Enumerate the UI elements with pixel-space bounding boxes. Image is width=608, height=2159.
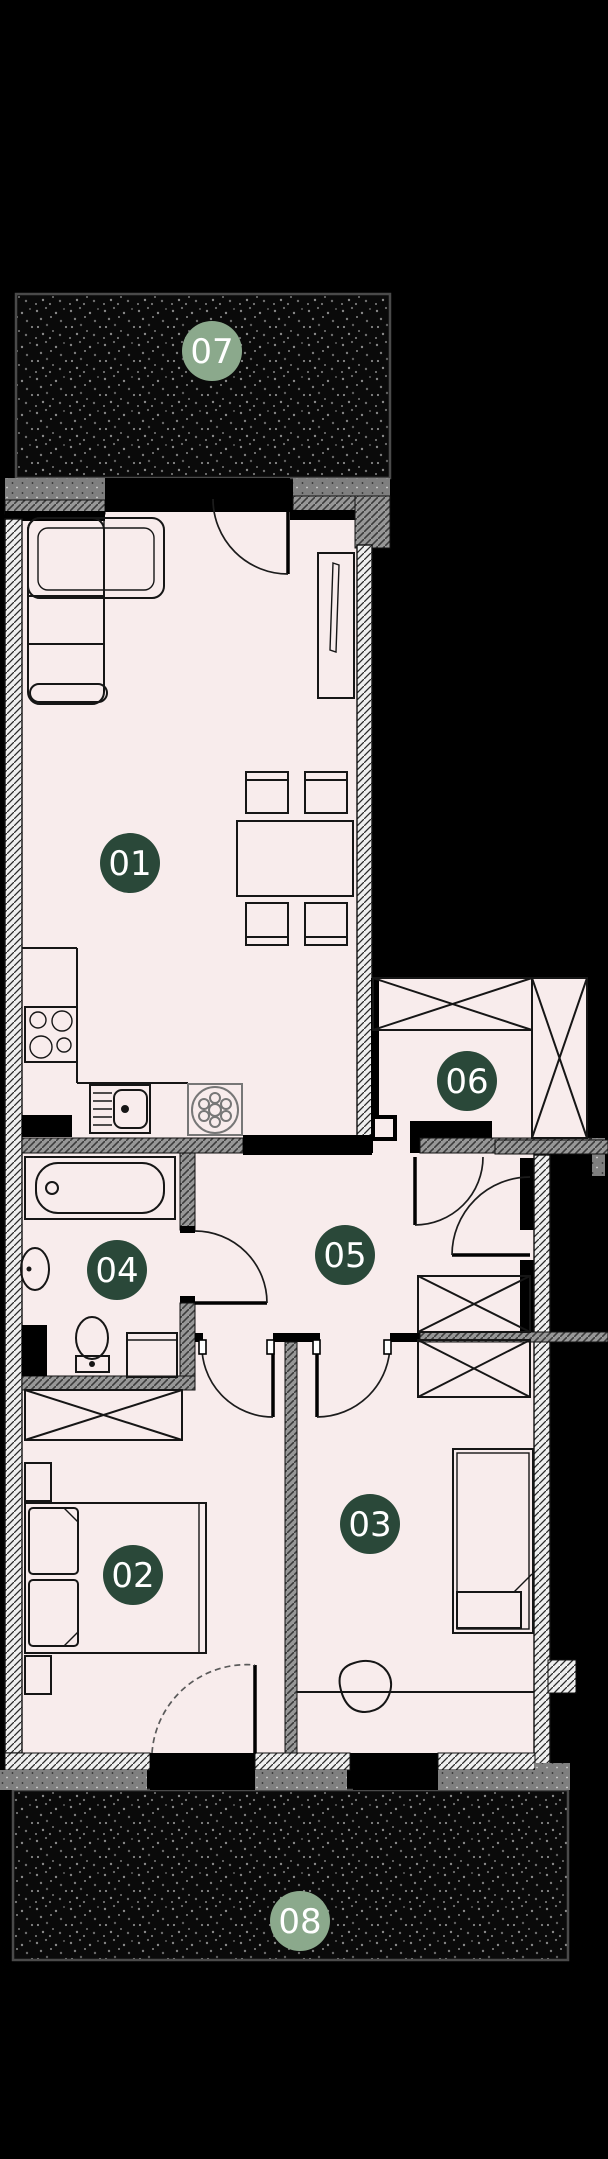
room-05-badge: 05 [315,1225,375,1285]
svg-text:05: 05 [323,1236,366,1276]
room-08-badge: 08 [270,1891,330,1951]
svg-text:01: 01 [108,844,151,884]
svg-text:02: 02 [111,1556,154,1596]
room-06-badge: 06 [437,1051,497,1111]
svg-text:06: 06 [445,1062,488,1102]
terrace-top [16,294,390,478]
svg-text:08: 08 [278,1902,321,1942]
room-03-badge: 03 [340,1494,400,1554]
room-04-badge: 04 [87,1240,147,1300]
svg-text:03: 03 [348,1505,391,1545]
room-01-badge: 01 [100,833,160,893]
floor-plan: 01 02 03 04 05 06 07 08 [0,0,608,2159]
shaft [22,1115,72,1137]
shaft [22,1325,47,1376]
svg-text:04: 04 [95,1251,138,1291]
room-02-badge: 02 [103,1545,163,1605]
svg-text:07: 07 [190,332,233,372]
room-07-badge: 07 [182,321,242,381]
duct-box [373,1117,395,1139]
